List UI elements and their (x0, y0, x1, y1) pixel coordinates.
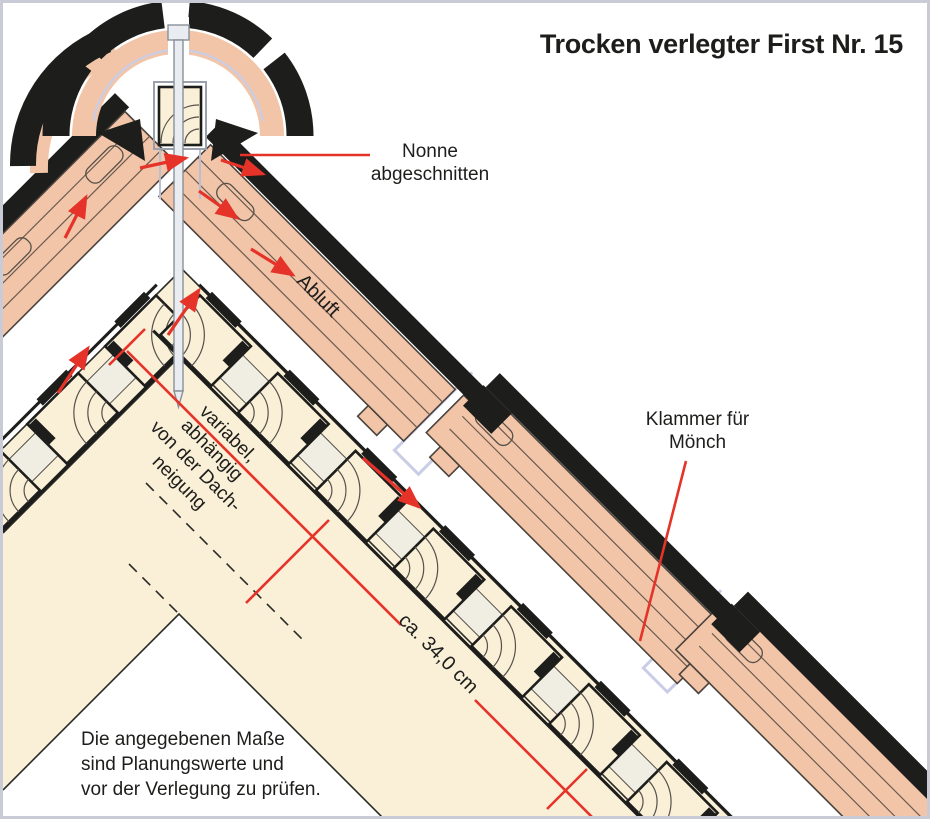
construction-diagram: Abluft variabel, abhängig von der Dach- … (3, 3, 930, 819)
nonne-tile-3 (676, 598, 930, 819)
nonne-label: Nonne abgeschnitten (365, 140, 495, 186)
rod-head (168, 25, 189, 40)
fixing-rod (174, 40, 183, 391)
planning-note: Die angegebenen Maße sind Planungswerte … (81, 727, 321, 802)
ridge-detail-drawing: Abluft variabel, abhängig von der Dach- … (0, 0, 930, 819)
klammer-label: Klammer für Mönch (625, 408, 770, 454)
drawing-title: Trocken verlegter First Nr. 15 (540, 29, 903, 60)
